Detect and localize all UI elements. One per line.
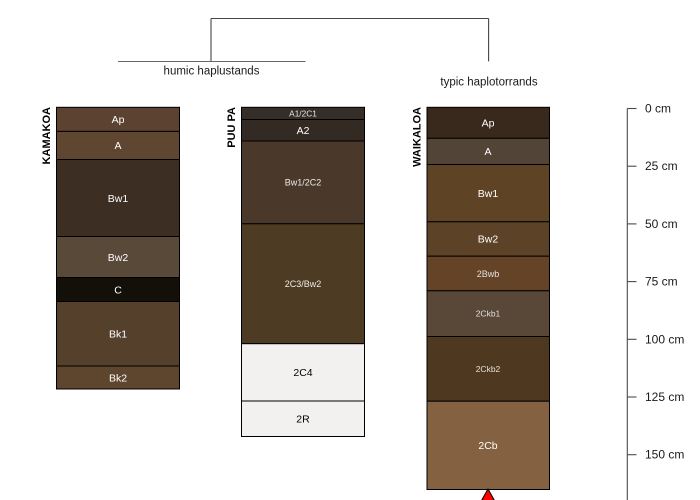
svg-text:Bk1: Bk1	[109, 329, 127, 341]
svg-text:A: A	[114, 140, 121, 152]
svg-text:Bk2: Bk2	[109, 372, 127, 384]
svg-text:A2: A2	[297, 125, 310, 137]
svg-text:Bw2: Bw2	[108, 252, 129, 264]
svg-text:Bw1/2C2: Bw1/2C2	[285, 178, 322, 188]
svg-text:humic haplustands: humic haplustands	[164, 66, 260, 78]
svg-text:Bw1: Bw1	[108, 193, 129, 205]
svg-text:Ap: Ap	[112, 114, 125, 126]
svg-text:125 cm: 125 cm	[645, 390, 684, 404]
svg-text:PUU PA: PUU PA	[226, 107, 238, 148]
svg-text:75 cm: 75 cm	[645, 275, 678, 289]
svg-text:2Ckb1: 2Ckb1	[476, 309, 501, 319]
svg-text:2Bwb: 2Bwb	[477, 269, 500, 279]
svg-text:Bw2: Bw2	[478, 234, 499, 246]
svg-text:WAIKALOA: WAIKALOA	[411, 107, 423, 167]
svg-text:2C4: 2C4	[293, 367, 312, 379]
svg-text:50 cm: 50 cm	[645, 217, 678, 231]
svg-text:A1/2C1: A1/2C1	[289, 108, 317, 118]
svg-text:A: A	[484, 146, 491, 158]
svg-text:Bw1: Bw1	[478, 188, 499, 200]
svg-text:typic haplotorrands: typic haplotorrands	[440, 77, 537, 89]
svg-text:2R: 2R	[296, 414, 310, 426]
svg-text:150 cm: 150 cm	[645, 448, 684, 462]
svg-text:C: C	[114, 284, 122, 296]
svg-text:KAMAKOA: KAMAKOA	[41, 107, 53, 164]
svg-text:2C3/Bw2: 2C3/Bw2	[285, 279, 322, 289]
svg-text:Ap: Ap	[482, 118, 495, 130]
svg-text:25 cm: 25 cm	[645, 159, 678, 173]
svg-text:2Ckb2: 2Ckb2	[476, 364, 501, 374]
svg-text:2Cb: 2Cb	[478, 440, 497, 452]
svg-text:0 cm: 0 cm	[645, 102, 671, 116]
svg-text:100 cm: 100 cm	[645, 332, 684, 346]
